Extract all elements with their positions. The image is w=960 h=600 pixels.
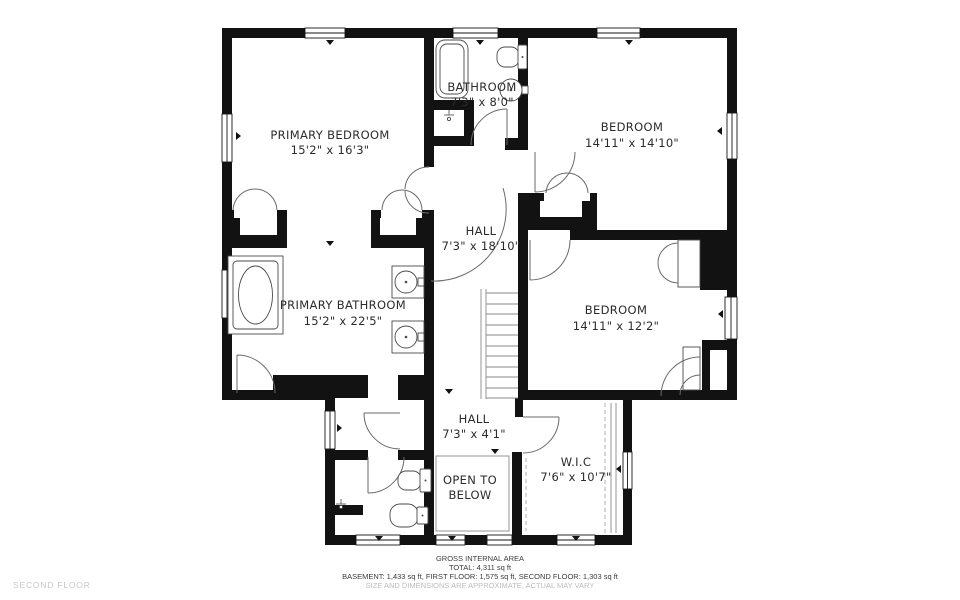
dimension-markers <box>236 40 723 541</box>
fixtures <box>228 40 528 527</box>
primary-bathroom-door <box>237 355 275 393</box>
staircase <box>481 289 518 399</box>
footer-title: GROSS INTERNAL AREA <box>436 554 524 563</box>
window <box>727 113 737 159</box>
primary-bedroom-french-doors <box>405 167 429 213</box>
room-dims-bedroom-1: 14'11" x 14'10" <box>585 136 679 150</box>
wall-hall-right-lower <box>518 193 528 400</box>
room-label-open-to-below: OPEN TO <box>443 473 497 487</box>
floor-label: SECOND FLOOR <box>13 580 91 590</box>
wall-band-left <box>273 375 368 398</box>
window <box>325 411 335 449</box>
room-label-open-to-below-2: BELOW <box>448 488 491 502</box>
primary-closet-right <box>371 190 434 248</box>
room-label-bathroom: BATHROOM <box>447 80 516 94</box>
window <box>725 297 737 339</box>
wall-band-right <box>398 375 434 400</box>
room-label-primary-bathroom: PRIMARY BATHROOM <box>280 298 406 312</box>
wall-smallbath-stub <box>325 505 363 515</box>
room-dims-hall: 7'3" x 18'10" <box>442 239 521 253</box>
window <box>623 452 632 489</box>
wall-bathroom-bottom <box>505 138 528 150</box>
vanity-sink-1 <box>392 266 424 298</box>
room-label-wic: W.I.C <box>561 455 592 469</box>
toilet <box>497 45 527 69</box>
window <box>487 535 512 545</box>
wall-wic-stub <box>515 398 523 417</box>
bathroom-door <box>471 109 507 145</box>
room-label-primary-bedroom: PRIMARY BEDROOM <box>270 128 389 142</box>
window <box>222 114 232 162</box>
floor-plan-page: PRIMARY BEDROOM 15'2" x 16'3" BATHROOM 7… <box>0 0 960 600</box>
footer-breakdown: BASEMENT: 1,433 sq ft, FIRST FLOOR: 1,57… <box>342 572 619 581</box>
wic-door <box>523 417 559 453</box>
window <box>305 28 345 38</box>
room-dims-primary-bathroom: 15'2" x 22'5" <box>304 314 383 328</box>
bedroom2-door <box>530 240 570 280</box>
room-dims-primary-bedroom: 15'2" x 16'3" <box>291 143 370 157</box>
vestibule-door <box>364 413 400 449</box>
window <box>453 28 498 38</box>
bedroom2-closet-top <box>658 235 737 290</box>
room-label-hall-lower: HALL <box>459 412 490 426</box>
toilet-2 <box>398 469 431 492</box>
wall-smallbath-top-left <box>325 450 368 460</box>
window <box>597 28 640 38</box>
room-dims-hall-lower: 7'3" x 4'1" <box>442 427 506 441</box>
room-label-hall: HALL <box>466 224 497 238</box>
room-dims-wic: 7'6" x 10'7" <box>540 470 611 484</box>
footer-total: TOTAL: 4,311 sq ft <box>449 563 512 572</box>
primary-bathtub <box>228 256 283 334</box>
vanity-sink-2 <box>392 321 424 353</box>
footer-disclaimer: SIZE AND DIMENSIONS ARE APPROXIMATE, ACT… <box>366 581 595 590</box>
toilet-3 <box>390 504 428 527</box>
wall-openbelow-right <box>512 452 522 543</box>
floor-plan-drawing: PRIMARY BEDROOM 15'2" x 16'3" BATHROOM 7… <box>0 0 960 600</box>
room-dims-bedroom-2: 14'11" x 12'2" <box>573 319 659 333</box>
footer: GROSS INTERNAL AREA TOTAL: 4,311 sq ft B… <box>13 554 619 590</box>
room-label-bedroom-2: BEDROOM <box>585 303 647 317</box>
room-label-bedroom-1: BEDROOM <box>601 120 663 134</box>
bedroom1-door <box>535 152 575 192</box>
wall-smallbath-top-right <box>398 450 434 460</box>
room-dims-bathroom: 7'3" x 8'0" <box>450 95 514 109</box>
